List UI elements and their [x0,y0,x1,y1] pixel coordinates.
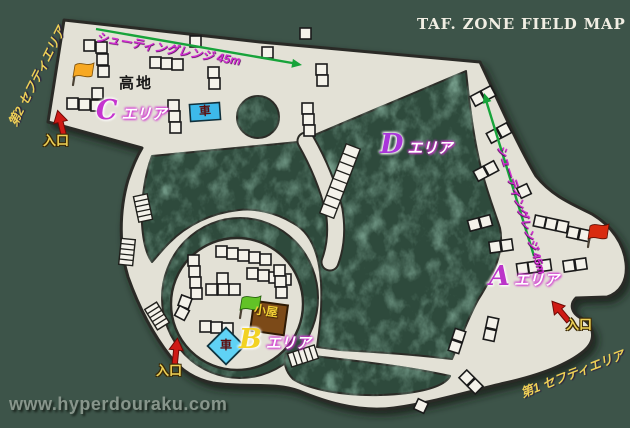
area-a-suffix: エリア [514,272,559,289]
field-map-image: TAF. ZONE FIELD MAP 第2 セフティエリア 第1 セフティエリ… [0,0,630,428]
area-a-label: Aエリア [489,262,559,292]
area-b-letter: B [239,324,262,355]
car-box-label: 車 [192,104,219,119]
area-b-label: Bエリア [239,325,311,355]
watermark: www.hyperdouraku.com [9,395,227,415]
entrance-south-label: 入口 [156,364,182,378]
area-d-label: Dエリア [380,130,452,160]
car-diamond-label: 車 [215,339,237,352]
highland-label: 高地 [119,76,153,93]
stairs-west-lower [119,238,136,265]
entrance-east-label: 入口 [566,318,592,332]
area-d-letter: D [380,129,403,160]
area-a-letter: A [489,261,510,292]
area-b-suffix: エリア [266,335,311,352]
entrance-west-label: 入口 [43,134,69,148]
map-title: TAF. ZONE FIELD MAP [417,16,626,33]
area-c-letter: C [96,95,118,126]
area-d-suffix: エリア [407,140,452,157]
area-c-suffix: エリア [122,106,167,123]
map-canvas [0,0,630,428]
area-c-label: Cエリア [96,96,167,126]
